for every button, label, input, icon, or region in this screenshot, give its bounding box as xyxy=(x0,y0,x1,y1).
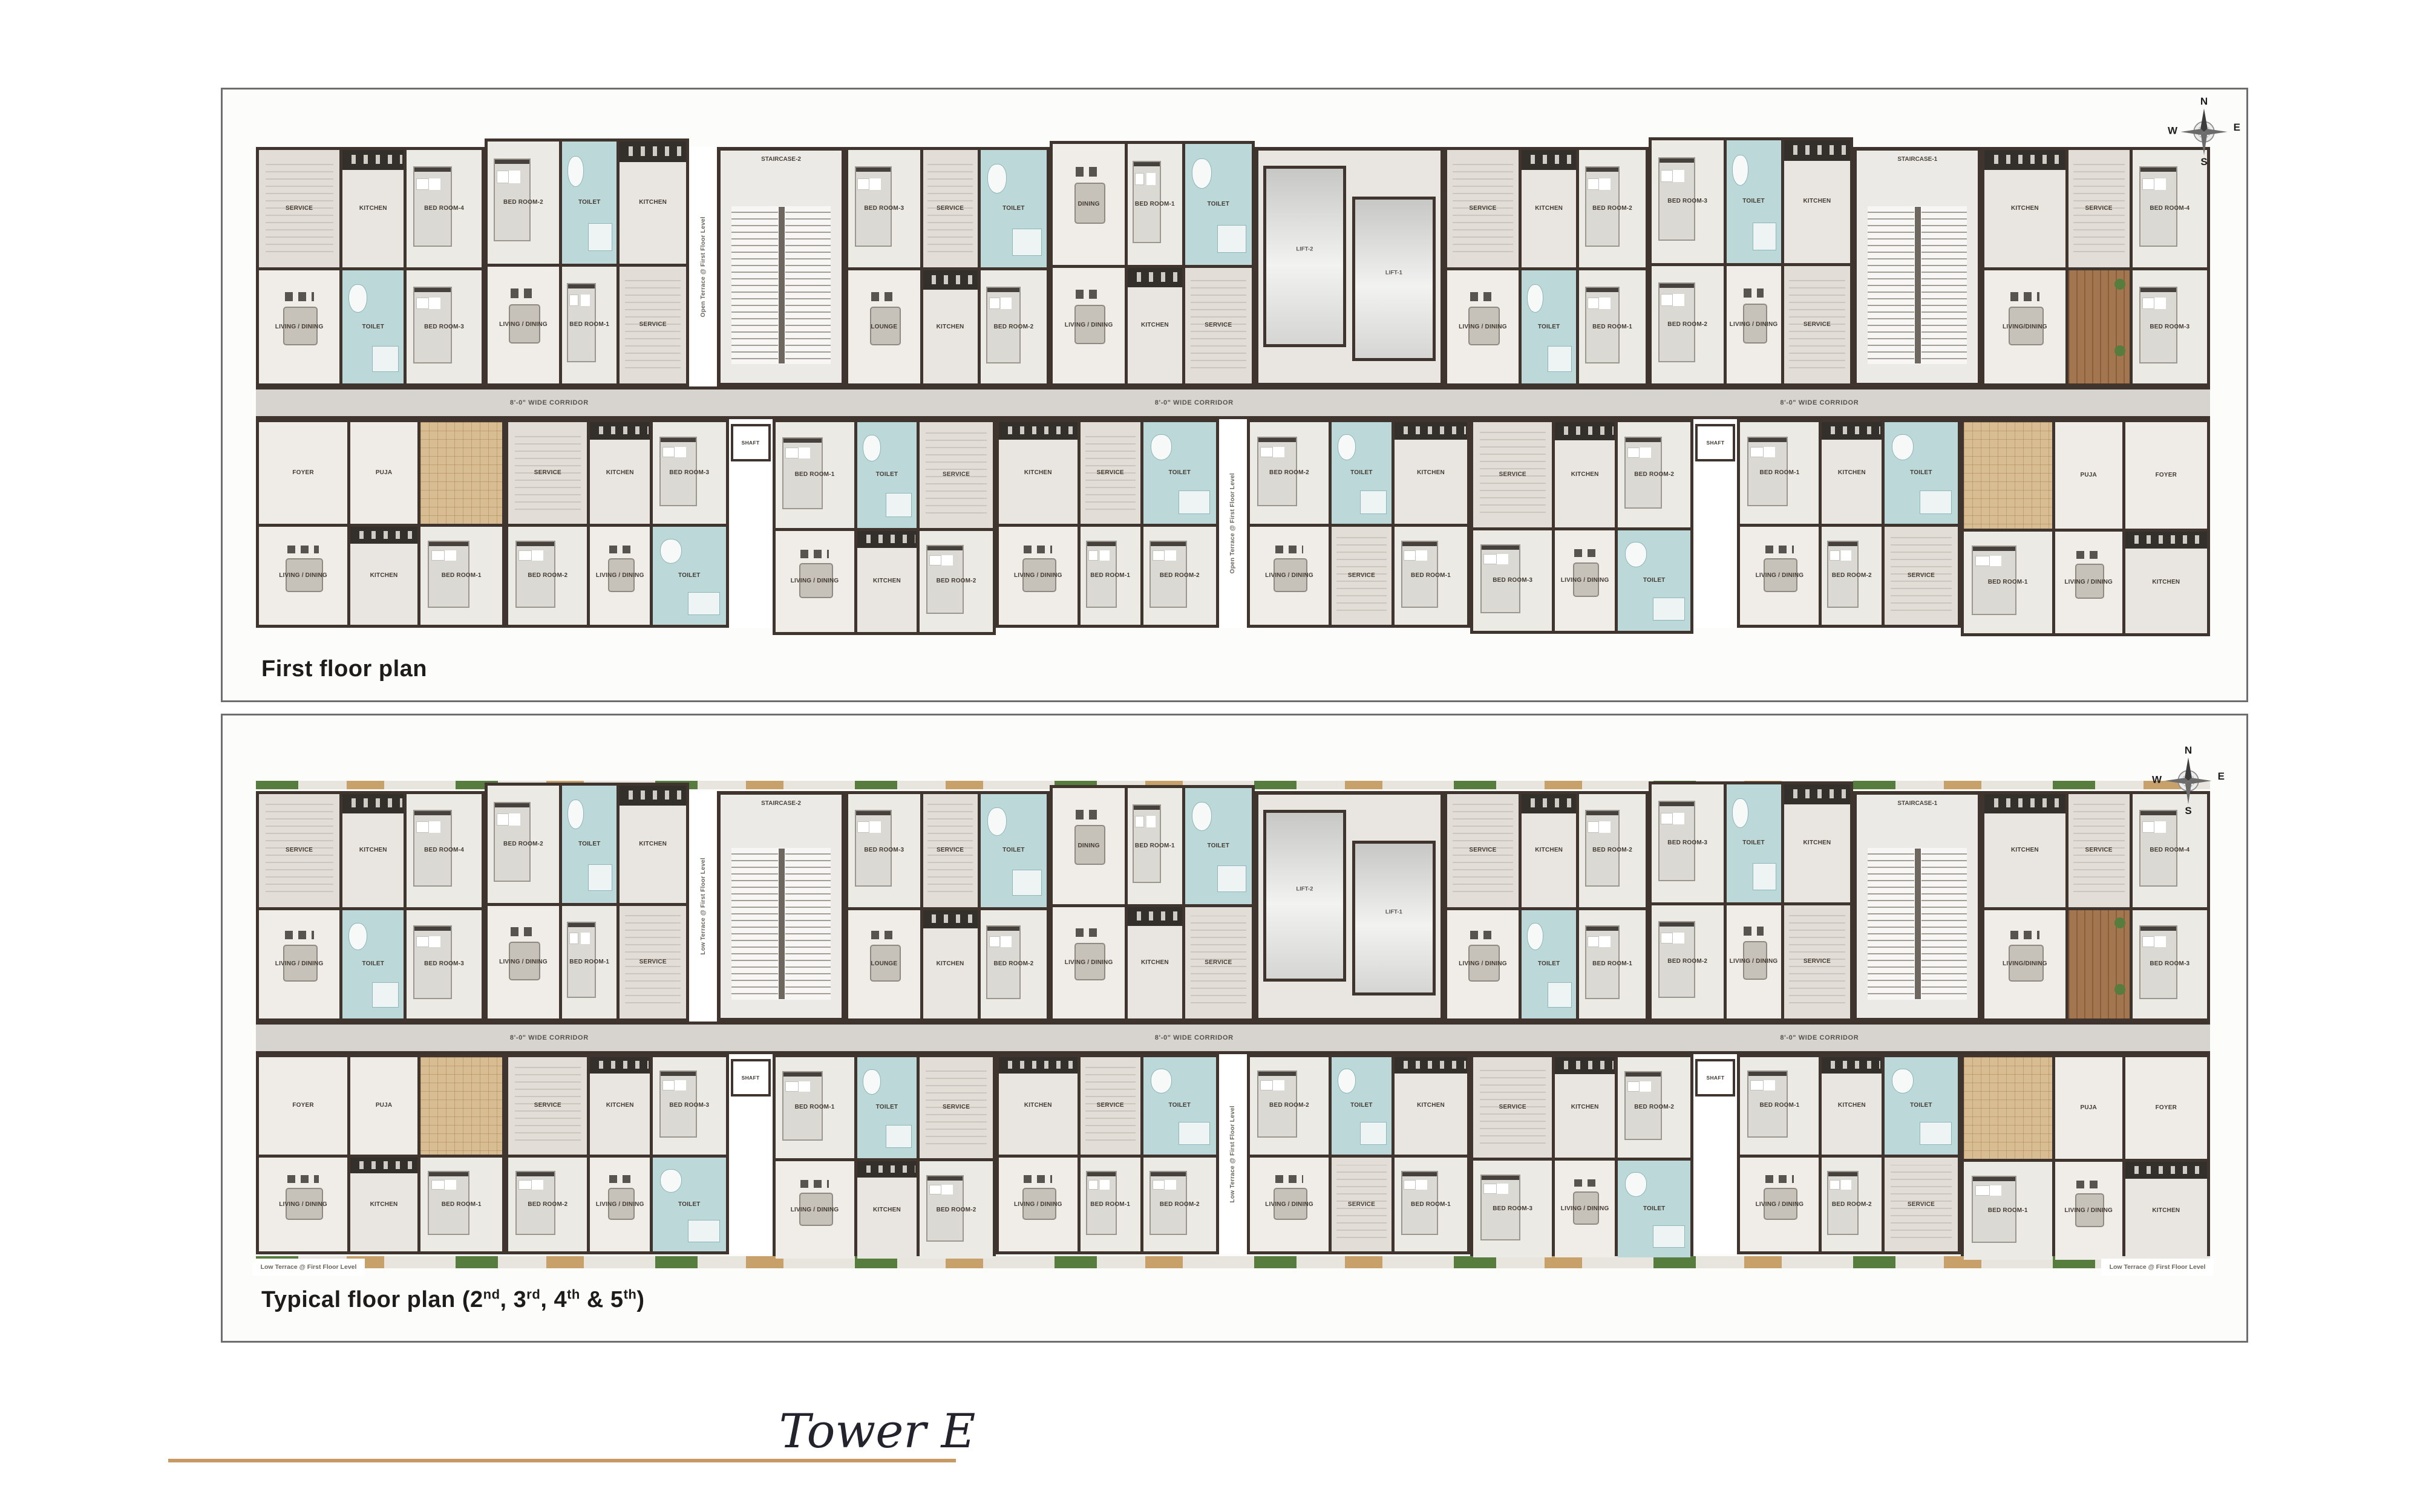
room-label: KITCHEN xyxy=(1524,205,1574,212)
room-label: BED ROOM-1 xyxy=(1582,960,1643,968)
caption-typical-floor: Typical floor plan (2nd, 3rd, 4th & 5th) xyxy=(261,1287,645,1313)
room-label: SERVICE xyxy=(1334,572,1389,579)
room-bed: BED ROOM-1 xyxy=(1395,1158,1467,1251)
room-label: KITCHEN xyxy=(353,572,415,579)
room-label: BED ROOM-3 xyxy=(410,960,479,968)
room-label: LIVING / DINING xyxy=(2058,1207,2119,1214)
apartment-unit: DININGBED ROOM-1TOILETLIVING / DININGKIT… xyxy=(1050,141,1254,386)
room-label: TOILET xyxy=(1728,839,1779,847)
room-bed: BED ROOM-2 xyxy=(488,786,560,903)
room-toilet: TOILET xyxy=(1522,910,1576,1018)
room-toilet: TOILET xyxy=(562,142,616,264)
room-label: DINING xyxy=(1056,842,1122,850)
room-bed: BED ROOM-2 xyxy=(1618,1057,1690,1158)
room-label: BED ROOM-2 xyxy=(1655,958,1721,965)
room-living: LIVING / DINING xyxy=(1053,907,1125,1018)
terrace-gap: Open Terrace @ First Floor Level xyxy=(1219,419,1247,628)
tower-title: Tower E xyxy=(696,1404,1059,1459)
room-label: BED ROOM-1 xyxy=(1083,572,1138,579)
staircase-label: STAIRCASE-2 xyxy=(721,800,842,807)
room-living: LIVING / DINING xyxy=(776,531,854,632)
room-service: SERVICE xyxy=(620,267,686,384)
terrace-note-text: Open Terrace @ First Floor Level xyxy=(1229,473,1236,573)
room-bed: BED ROOM-2 xyxy=(1618,422,1690,527)
room-toilet: TOILET xyxy=(857,422,917,527)
room-deck xyxy=(2068,270,2130,383)
room-service: SERVICE xyxy=(1332,1158,1391,1251)
room-label: LIVING / DINING xyxy=(1450,960,1516,968)
corridor-label: 8'-0" WIDE CORRIDOR xyxy=(1780,1034,1859,1041)
apartment-unit: BED ROOM-1KITCHENTOILETLIVING / DININGBE… xyxy=(1737,419,1960,628)
room-label: TOILET xyxy=(1621,577,1688,584)
room-label: BED ROOM-2 xyxy=(983,960,1044,968)
room-living: LIVING / DINING xyxy=(1727,905,1781,1018)
room-bed: BED ROOM-1 xyxy=(1964,532,2052,633)
staircase-label: STAIRCASE-1 xyxy=(1857,156,1978,163)
room-service: SERVICE xyxy=(620,906,686,1018)
apartment-unit: FOYERPUJALIVING / DININGKITCHENBED ROOM-… xyxy=(256,419,505,628)
room-bed: BED ROOM-2 xyxy=(981,270,1047,383)
room-service: SERVICE xyxy=(2068,794,2130,907)
room-service: SERVICE xyxy=(923,150,978,267)
room-label: SERVICE xyxy=(1476,471,1549,478)
room-label: BED ROOM-3 xyxy=(410,324,479,331)
room-living: LIVING / DINING xyxy=(1740,1158,1819,1251)
room-plain: PUJA xyxy=(350,422,417,524)
room-toilet: TOILET xyxy=(1185,788,1252,904)
room-toilet: TOILET xyxy=(857,1057,917,1159)
room-label: BED ROOM-1 xyxy=(1967,1207,2048,1214)
apartment-unit: BED ROOM-1TOILETSERVICELIVING / DININGKI… xyxy=(773,1054,996,1262)
room-label: SERVICE xyxy=(1476,1104,1549,1111)
room-kitchen: KITCHEN xyxy=(1522,150,1576,267)
room-deck xyxy=(2068,910,2130,1018)
room-bed: BED ROOM-2 xyxy=(1579,794,1646,907)
room-label: KITCHEN xyxy=(860,578,915,585)
room-kitchen: KITCHEN xyxy=(1555,422,1615,527)
room-label: LIVING / DINING xyxy=(263,572,344,579)
shaft: SHAFT xyxy=(729,1054,773,1254)
room-label: KITCHEN xyxy=(345,205,401,212)
room-kitchen: KITCHEN xyxy=(620,142,686,264)
room-toilet: TOILET xyxy=(1143,1057,1216,1155)
room-label: TOILET xyxy=(1334,469,1389,477)
room-label: LIVING / DINING xyxy=(1002,572,1074,579)
shaft-label: SHAFT xyxy=(731,424,771,461)
room-service: SERVICE xyxy=(920,422,992,527)
apartment-unit: BED ROOM-2TOILETKITCHENLIVING / DININGBE… xyxy=(485,138,689,386)
room-label: BED ROOM-3 xyxy=(1476,1205,1549,1213)
room-label: BED ROOM-2 xyxy=(512,572,584,579)
room-service: SERVICE xyxy=(1885,527,1957,625)
room-label: TOILET xyxy=(1146,1102,1213,1109)
room-living: LIVING / DINING xyxy=(1555,530,1615,631)
room-kitchen: KITCHEN xyxy=(1984,150,2065,267)
room-label: BED ROOM-4 xyxy=(410,847,479,854)
terrace-gap: Open Terrace @ First Floor Level xyxy=(689,147,717,386)
room-label: SERVICE xyxy=(1083,469,1138,477)
room-label: KITCHEN xyxy=(623,199,684,206)
room-label: PUJA xyxy=(2058,472,2119,479)
room-label: BED ROOM-2 xyxy=(1146,572,1213,579)
panel-first-floor-plan: SERVICEKITCHENBED ROOM-4LIVING / DININGT… xyxy=(221,88,2248,702)
staircase-label: STAIRCASE-2 xyxy=(721,156,842,163)
room-label: KITCHEN xyxy=(623,841,684,848)
room-label: BED ROOM-2 xyxy=(1582,847,1643,854)
room-bed: BED ROOM-2 xyxy=(1143,1158,1216,1251)
room-toilet: TOILET xyxy=(562,786,616,903)
room-living: LIVING / DINING xyxy=(1053,268,1125,384)
room-kitchen: KITCHEN xyxy=(342,794,404,907)
room-kitchen: KITCHEN xyxy=(1395,1057,1467,1155)
compass: N E S W xyxy=(2154,747,2222,815)
corridor-label: 8'-0" WIDE CORRIDOR xyxy=(1155,1034,1234,1041)
stair-treads-icon xyxy=(731,848,831,1000)
room-label: LIVING / DINING xyxy=(263,1201,344,1208)
room-bed: BED ROOM-1 xyxy=(1579,270,1646,383)
room-kitchen: KITCHEN xyxy=(923,270,978,383)
room-label: BED ROOM-2 xyxy=(490,199,556,206)
room-kitchen: KITCHEN xyxy=(342,150,404,267)
room-label: KITCHEN xyxy=(1988,847,2062,854)
room-label: SERVICE xyxy=(925,847,975,854)
room-bed: BED ROOM-1 xyxy=(562,267,616,384)
room-label: KITCHEN xyxy=(1398,1102,1465,1109)
stair-treads-icon xyxy=(731,206,831,364)
room-kitchen: KITCHEN xyxy=(620,786,686,903)
room-label: BED ROOM-4 xyxy=(2136,205,2205,212)
room-bed: BED ROOM-3 xyxy=(653,1057,725,1155)
room-toilet: TOILET xyxy=(1332,1057,1391,1155)
room-label: BED ROOM-4 xyxy=(2136,847,2205,854)
room-toilet: TOILET xyxy=(1185,144,1252,265)
room-kitchen: KITCHEN xyxy=(999,422,1078,524)
room-service: SERVICE xyxy=(1185,268,1252,384)
room-label: LIVING / DINING xyxy=(1450,324,1516,331)
room-label: BED ROOM-1 xyxy=(1967,579,2048,586)
room-toilet: TOILET xyxy=(1727,140,1781,263)
room-label: LIVING / DINING xyxy=(1557,1205,1612,1213)
room-service: SERVICE xyxy=(1447,150,1519,267)
room-label: DINING xyxy=(1056,201,1122,208)
room-label: BED ROOM-1 xyxy=(1083,1201,1138,1208)
room-label: KITCHEN xyxy=(1557,1104,1612,1111)
room-bed: BED ROOM-3 xyxy=(848,794,920,907)
room-service: SERVICE xyxy=(920,1057,992,1159)
room-label: LIVING/DINING xyxy=(1988,960,2062,968)
low-terrace-note: Low Terrace @ First Floor Level xyxy=(2101,1259,2214,1276)
room-label: LIVING / DINING xyxy=(262,960,336,968)
room-label: SERVICE xyxy=(1888,1201,1955,1208)
room-bed: BED ROOM-2 xyxy=(1579,150,1646,267)
room-label: BED ROOM-3 xyxy=(1476,577,1549,584)
room-kitchen: KITCHEN xyxy=(1822,1057,1882,1155)
room-toilet: TOILET xyxy=(342,910,404,1018)
room-label: SERVICE xyxy=(623,959,684,966)
room-bed: BED ROOM-3 xyxy=(2133,910,2207,1018)
room-label: BED ROOM-1 xyxy=(1130,842,1180,850)
room-bed: BED ROOM-3 xyxy=(407,910,481,1018)
room-label: BED ROOM-1 xyxy=(423,572,499,579)
room-bed: BED ROOM-1 xyxy=(1128,144,1182,265)
apartments-bottom-row: FOYERPUJALIVING / DININGKITCHENBED ROOM-… xyxy=(256,1054,2210,1254)
room-label: BED ROOM-4 xyxy=(410,205,479,212)
room-label: LIVING / DINING xyxy=(779,1207,851,1214)
compass-north-label: N xyxy=(2200,96,2208,108)
room-label: BED ROOM-2 xyxy=(923,578,990,585)
shaft: SHAFT xyxy=(729,419,773,628)
room-bed: BED ROOM-2 xyxy=(1822,1158,1882,1251)
lift-core: LIFT-2LIFT-1 xyxy=(1255,147,1444,386)
room-kitchen: KITCHEN xyxy=(1784,140,1851,263)
room-label: BED ROOM-2 xyxy=(923,1207,990,1214)
room-label: BED ROOM-1 xyxy=(564,959,615,966)
room-service: SERVICE xyxy=(1784,905,1851,1018)
room-bed: BED ROOM-1 xyxy=(1128,788,1182,904)
stair-treads-icon xyxy=(1868,848,1967,1000)
room-plain: PUJA xyxy=(2055,1057,2122,1159)
room-living: LIVING / DINING xyxy=(999,527,1078,625)
room-label: KITCHEN xyxy=(925,324,975,331)
room-bed: BED ROOM-1 xyxy=(1740,1057,1819,1155)
room-label: FOYER xyxy=(2128,472,2203,479)
apartment-unit: SERVICEKITCHENBED ROOM-2BED ROOM-3LIVING… xyxy=(1470,419,1693,634)
room-service: SERVICE xyxy=(1081,422,1140,524)
room-kitchen: KITCHEN xyxy=(1395,422,1467,524)
room-label: KITCHEN xyxy=(1824,469,1879,477)
corridor: 8'-0" WIDE CORRIDOR8'-0" WIDE CORRIDOR8'… xyxy=(256,386,2210,419)
room-kitchen: KITCHEN xyxy=(590,422,650,524)
room-bed: BED ROOM-2 xyxy=(981,910,1047,1018)
room-toilet: TOILET xyxy=(1885,422,1957,524)
room-label: KITCHEN xyxy=(1002,469,1074,477)
room-label: TOILET xyxy=(1188,842,1249,850)
room-label: LOUNGE xyxy=(851,324,917,331)
room-label: BED ROOM-1 xyxy=(1398,1201,1465,1208)
shaft: SHAFT xyxy=(1693,419,1737,628)
room-label: BED ROOM-2 xyxy=(1253,1102,1326,1109)
room-toilet: TOILET xyxy=(1618,1161,1690,1257)
room-bed: BED ROOM-3 xyxy=(1473,530,1552,631)
room-label: KITCHEN xyxy=(2128,579,2203,586)
apartment-unit: PUJAFOYERBED ROOM-1LIVING / DININGKITCHE… xyxy=(1961,1054,2210,1263)
room-toilet: TOILET xyxy=(342,270,404,383)
room-living: LIVING / DINING xyxy=(2055,532,2122,633)
shaft-label: SHAFT xyxy=(1695,424,1735,461)
room-living: LIVING / DINING xyxy=(259,1158,347,1251)
lift-label: LIFT-1 xyxy=(1355,909,1433,916)
compass-rose-icon xyxy=(2163,755,2214,806)
room-bed: BED ROOM-1 xyxy=(776,1057,854,1159)
room-label: SERVICE xyxy=(923,471,990,478)
staircase: STAIRCASE-2 xyxy=(717,147,845,386)
room-kitchen: KITCHEN xyxy=(2125,532,2207,633)
room-label: BED ROOM-1 xyxy=(1130,201,1180,208)
stair-treads-icon xyxy=(1868,206,1967,364)
room-label: KITCHEN xyxy=(925,960,975,968)
room-plain: FOYER xyxy=(2125,1057,2207,1159)
lift-shaft: LIFT-2 xyxy=(1263,810,1347,982)
room-bed: BED ROOM-2 xyxy=(488,142,560,264)
room-service: SERVICE xyxy=(923,794,978,907)
apartment-unit: SERVICEKITCHENBED ROOM-2LIVING / DININGT… xyxy=(1444,147,1649,386)
room-bed: BED ROOM-1 xyxy=(1081,527,1140,625)
room-service: SERVICE xyxy=(2068,150,2130,267)
room-plain: FOYER xyxy=(259,422,347,524)
room-label: SERVICE xyxy=(925,205,975,212)
room-label: LIVING / DINING xyxy=(1728,321,1779,328)
room-terrace xyxy=(1964,1057,2052,1159)
room-label: BED ROOM-2 xyxy=(1582,205,1643,212)
room-kitchen: KITCHEN xyxy=(1822,422,1882,524)
corridor-label: 8'-0" WIDE CORRIDOR xyxy=(1780,399,1859,406)
room-label: SERVICE xyxy=(923,1104,990,1111)
compass-west-label: W xyxy=(2152,774,2162,786)
apartment-unit: SERVICEKITCHENBED ROOM-3BED ROOM-2LIVING… xyxy=(505,419,728,628)
room-label: PUJA xyxy=(2058,1104,2119,1112)
room-label: KITCHEN xyxy=(1787,198,1848,205)
room-bed: BED ROOM-2 xyxy=(1822,527,1882,625)
room-label: TOILET xyxy=(860,471,915,478)
room-living: LIVING / DINING xyxy=(488,267,560,384)
apartments-top-row: SERVICEKITCHENBED ROOM-4LIVING / DININGT… xyxy=(256,791,2210,1022)
room-bed: BED ROOM-3 xyxy=(2133,270,2207,383)
room-living: LIVING / DINING xyxy=(1727,266,1781,384)
shaft: SHAFT xyxy=(1693,1054,1737,1254)
compass-rose-icon xyxy=(2179,106,2229,157)
room-living: LIVING / DINING xyxy=(1555,1161,1615,1257)
room-living: LIVING / DINING xyxy=(776,1161,854,1259)
room-label: SERVICE xyxy=(1787,958,1848,965)
staircase: STAIRCASE-2 xyxy=(717,791,845,1022)
staircase: STAIRCASE-1 xyxy=(1853,147,1981,386)
room-living: LOUNGE xyxy=(848,270,920,383)
room-label: BED ROOM-1 xyxy=(779,1104,851,1111)
room-label: LIVING / DINING xyxy=(592,572,647,579)
compass-west-label: W xyxy=(2168,125,2177,137)
room-label: KITCHEN xyxy=(1824,1102,1879,1109)
room-label: BED ROOM-3 xyxy=(851,847,917,854)
room-bed: BED ROOM-4 xyxy=(407,150,481,267)
lift-core: LIFT-2LIFT-1 xyxy=(1255,791,1444,1022)
room-label: TOILET xyxy=(1334,1102,1389,1109)
room-service: SERVICE xyxy=(508,422,587,524)
room-plain: PUJA xyxy=(2055,422,2122,528)
room-label: SERVICE xyxy=(2071,205,2127,212)
room-kitchen: KITCHEN xyxy=(590,1057,650,1155)
room-bed: BED ROOM-4 xyxy=(2133,150,2207,267)
room-label: LIVING / DINING xyxy=(1253,572,1326,579)
room-bed: BED ROOM-1 xyxy=(420,527,502,625)
room-toilet: TOILET xyxy=(1885,1057,1957,1155)
room-label: KITCHEN xyxy=(1557,471,1612,478)
apartment-unit: SERVICEKITCHENBED ROOM-4LIVING / DININGT… xyxy=(256,147,485,386)
apartment-unit: SERVICEKITCHENBED ROOM-3BED ROOM-2LIVING… xyxy=(505,1054,728,1254)
apartment-unit: KITCHENSERVICEBED ROOM-4LIVING/DININGBED… xyxy=(1981,147,2210,386)
room-kitchen: KITCHEN xyxy=(350,527,417,625)
room-label: BED ROOM-3 xyxy=(1655,839,1721,847)
room-toilet: TOILET xyxy=(653,1158,725,1251)
room-service: SERVICE xyxy=(259,794,339,907)
room-label: BED ROOM-1 xyxy=(564,321,615,328)
room-label: SERVICE xyxy=(1083,1102,1138,1109)
room-bed: BED ROOM-1 xyxy=(1579,910,1646,1018)
shaft-label: SHAFT xyxy=(1695,1059,1735,1097)
room-label: TOILET xyxy=(1146,469,1213,477)
room-label: SERVICE xyxy=(262,205,336,212)
room-plain: FOYER xyxy=(259,1057,347,1155)
room-label: BED ROOM-2 xyxy=(490,841,556,848)
room-living: LIVING / DINING xyxy=(1250,527,1329,625)
room-label: KITCHEN xyxy=(860,1207,915,1214)
corridor-label: 8'-0" WIDE CORRIDOR xyxy=(1155,399,1234,406)
room-label: BED ROOM-1 xyxy=(1744,469,1816,477)
room-label: SERVICE xyxy=(1450,205,1516,212)
room-label: SERVICE xyxy=(512,469,584,477)
compass-north-label: N xyxy=(2185,745,2192,757)
apartment-unit: BED ROOM-3SERVICETOILETLOUNGEKITCHENBED … xyxy=(845,791,1050,1022)
room-living: LOUNGE xyxy=(848,910,920,1018)
room-label: TOILET xyxy=(656,1201,723,1208)
room-label: TOILET xyxy=(564,841,615,848)
shaft-label: SHAFT xyxy=(731,1059,771,1097)
room-bed: BED ROOM-1 xyxy=(1395,527,1467,625)
room-label: SERVICE xyxy=(262,847,336,854)
room-label: LIVING / DINING xyxy=(490,321,556,328)
corridor-label: 8'-0" WIDE CORRIDOR xyxy=(510,1034,589,1041)
room-label: TOILET xyxy=(1621,1205,1688,1213)
compass-east-label: E xyxy=(2218,771,2225,783)
apartment-unit: BED ROOM-1KITCHENTOILETLIVING / DININGBE… xyxy=(1737,1054,1960,1254)
room-label: BED ROOM-1 xyxy=(779,471,851,478)
room-label: TOILET xyxy=(1888,469,1955,477)
room-kitchen: KITCHEN xyxy=(857,531,917,632)
room-label: LIVING / DINING xyxy=(1056,959,1122,966)
room-bed: BED ROOM-1 xyxy=(1081,1158,1140,1251)
room-label: LOUNGE xyxy=(851,960,917,968)
room-label: BED ROOM-1 xyxy=(423,1201,499,1208)
floorplan-first-floor: SERVICEKITCHENBED ROOM-4LIVING / DININGT… xyxy=(256,147,2210,628)
apartment-unit: SERVICEKITCHENBED ROOM-2BED ROOM-3LIVING… xyxy=(1470,1054,1693,1260)
lift-label: LIFT-1 xyxy=(1355,269,1433,276)
room-kitchen: KITCHEN xyxy=(1128,268,1182,384)
terrace-note-text: Open Terrace @ First Floor Level xyxy=(700,217,707,317)
apartment-unit: BED ROOM-1TOILETSERVICELIVING / DININGKI… xyxy=(773,419,996,635)
room-label: SERVICE xyxy=(1334,1201,1389,1208)
room-bed: BED ROOM-2 xyxy=(1652,905,1724,1018)
apartment-unit: BED ROOM-2TOILETKITCHENLIVING / DININGSE… xyxy=(1247,419,1470,628)
room-label: TOILET xyxy=(860,1104,915,1111)
lift-shaft: LIFT-1 xyxy=(1352,841,1436,996)
room-bed: BED ROOM-4 xyxy=(407,794,481,907)
room-label: BED ROOM-2 xyxy=(1253,469,1326,477)
room-living: LIVING/DINING xyxy=(1984,270,2065,383)
room-label: FOYER xyxy=(2128,1104,2203,1112)
room-label: KITCHEN xyxy=(1988,205,2062,212)
apartment-unit: PUJAFOYERBED ROOM-1LIVING / DININGKITCHE… xyxy=(1961,419,2210,636)
room-bed: BED ROOM-1 xyxy=(1740,422,1819,524)
room-living: LIVING / DINING xyxy=(259,910,339,1018)
room-bed: BED ROOM-2 xyxy=(1652,266,1724,384)
room-label: LIVING / DINING xyxy=(1728,958,1779,965)
room-plain: PUJA xyxy=(350,1057,417,1155)
room-living: LIVING / DINING xyxy=(488,906,560,1018)
room-label: SERVICE xyxy=(1450,847,1516,854)
apartment-unit: KITCHENSERVICEBED ROOM-4LIVING/DININGBED… xyxy=(1981,791,2210,1022)
room-bed: BED ROOM-3 xyxy=(407,270,481,383)
room-kitchen: KITCHEN xyxy=(1784,784,1851,902)
room-living: LIVING / DINING xyxy=(1740,527,1819,625)
